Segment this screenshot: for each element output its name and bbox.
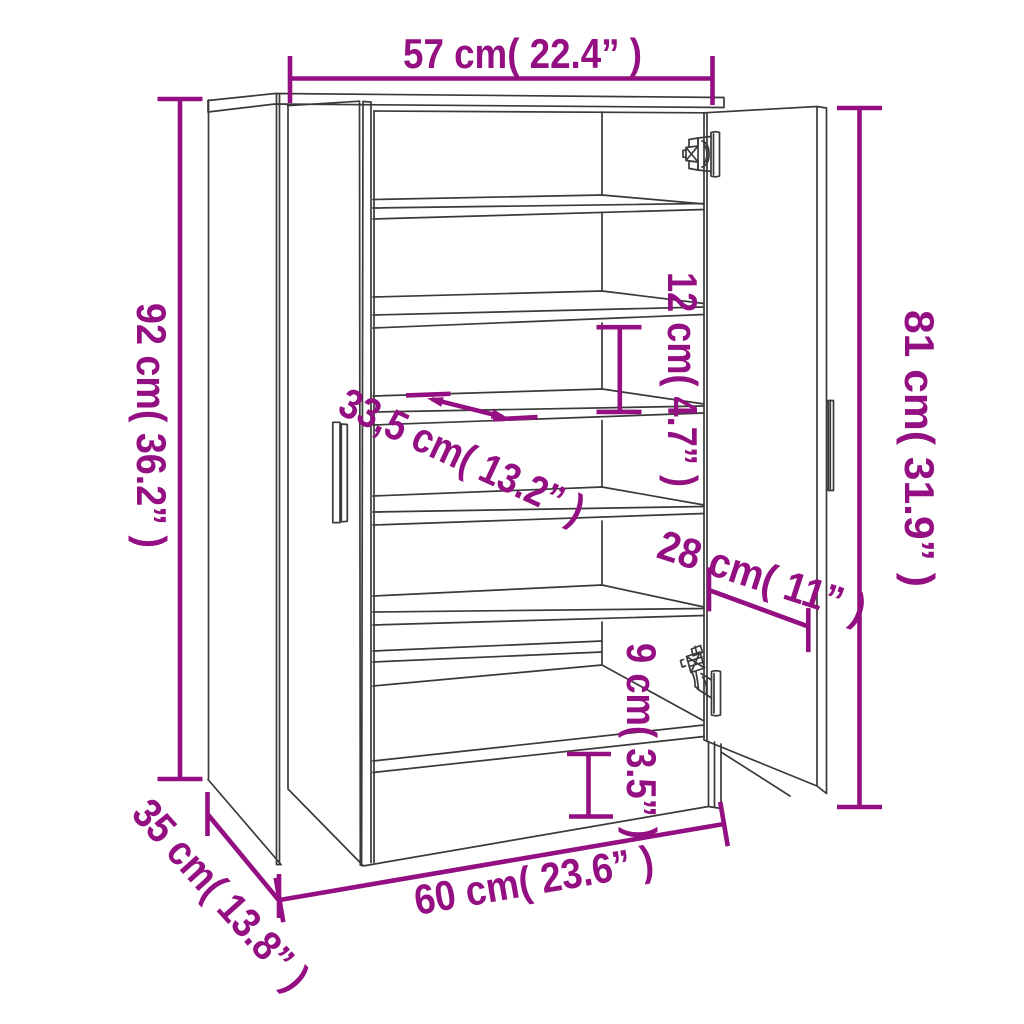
svg-text:9 cm( 3.5” ): 9 cm( 3.5” ): [618, 643, 665, 839]
svg-text:81 cm( 31.9” ): 81 cm( 31.9” ): [896, 310, 943, 587]
svg-text:57 cm( 22.4” ): 57 cm( 22.4” ): [403, 30, 642, 77]
svg-text:92 cm( 36.2” ): 92 cm( 36.2” ): [128, 303, 175, 548]
svg-text:12 cm( 4.7” ): 12 cm( 4.7” ): [659, 272, 706, 487]
